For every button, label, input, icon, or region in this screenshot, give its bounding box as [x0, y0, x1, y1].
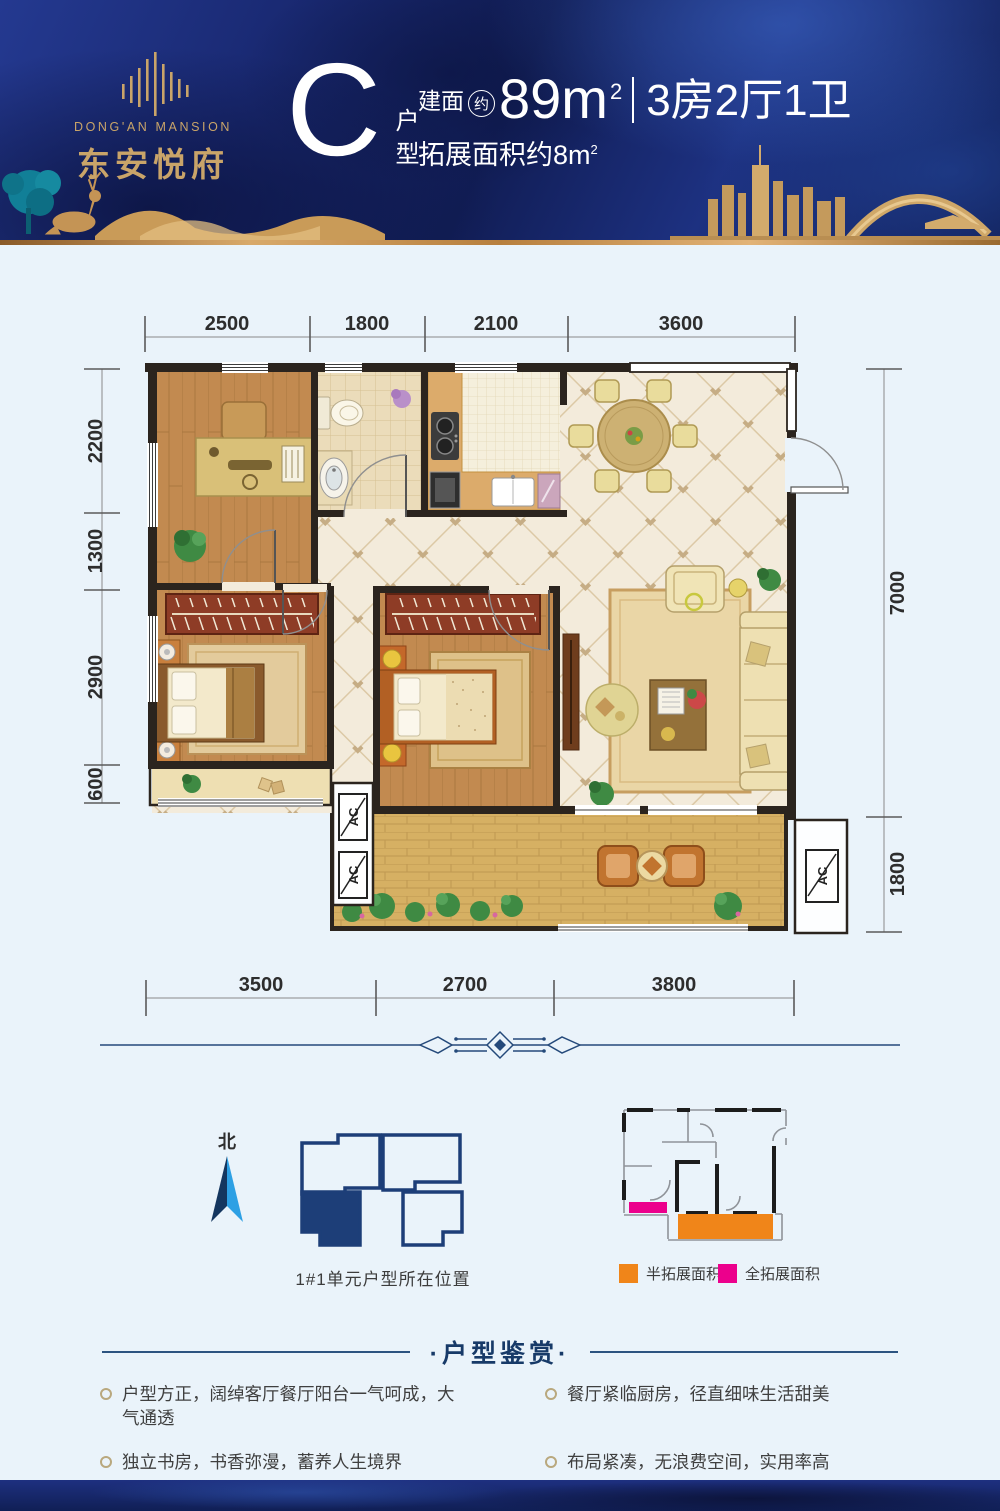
mountains-icon — [95, 211, 385, 240]
divider-ornament — [100, 1032, 900, 1058]
legend-half-swatch — [619, 1264, 638, 1283]
dim-top-2: 1800 — [345, 313, 390, 335]
dim-top-3: 2100 — [474, 313, 519, 335]
dim-right-2: 1800 — [887, 852, 909, 897]
unit-letter: C — [286, 44, 381, 176]
bullet-icon — [100, 1456, 112, 1468]
review-header: ·户型鉴赏· — [0, 1334, 1000, 1370]
bullet-icon — [545, 1456, 557, 1468]
brand-logo-icon — [108, 52, 200, 116]
dim-left-4: 600 — [85, 767, 107, 800]
area-sup: 2 — [610, 81, 622, 103]
bedroom-middle-furniture — [378, 594, 540, 768]
north-indicator: 北 — [211, 1132, 243, 1222]
review-item: 独立书房，书香弥漫，蓄养人生境界 — [100, 1450, 455, 1474]
brand-name-en: DONG'AN MANSION — [58, 120, 248, 134]
brand-name-cn: 东安悦府 — [58, 138, 248, 186]
unit-spec: 建面 约 89m 2 3房2厅1卫 拓展面积约8m2 — [418, 72, 852, 172]
page: DONG'AN MANSION 东安悦府 C 户型 建面 约 89m 2 3房2… — [0, 0, 1000, 1511]
expand-value: 拓展面积约8m — [418, 140, 591, 170]
ac-label-2: AC — [346, 865, 361, 884]
entry-door — [791, 438, 848, 493]
half-expansion-zone — [678, 1214, 773, 1239]
review-item: 餐厅紧临厨房，径直细味生活甜美 — [545, 1382, 900, 1430]
dim-bottom-3: 3800 — [652, 974, 697, 996]
brand-logo: DONG'AN MANSION 东安悦府 — [58, 52, 248, 186]
rooms-value: 3房2厅1卫 — [646, 79, 851, 125]
legend-half-label: 半拓展面积 — [646, 1266, 721, 1283]
floor-plan: AC AC AC 2500 1800 2100 3600 2200 1300 2… — [0, 280, 1000, 1065]
review-item-text: 户型方正，阔绰客厅餐厅阳台一气呵成，大气通透 — [122, 1382, 455, 1430]
building-locator — [302, 1135, 462, 1245]
review-rule-left — [102, 1351, 410, 1353]
north-label: 北 — [218, 1132, 236, 1152]
bridge-icon — [850, 199, 989, 239]
dim-left-2: 1300 — [85, 529, 107, 574]
area-value: 89m — [499, 72, 608, 125]
unit-location-block — [302, 1192, 360, 1245]
dim-bottom-2: 2700 — [443, 974, 488, 996]
legend-full-swatch — [718, 1264, 737, 1283]
review-item: 户型方正，阔绰客厅餐厅阳台一气呵成，大气通透 — [100, 1382, 455, 1430]
review-rule-right — [590, 1351, 898, 1353]
gold-divider — [0, 240, 1000, 245]
north-arrow-icon — [211, 1156, 227, 1222]
approx-badge: 约 — [468, 90, 495, 117]
expand-sup: 2 — [591, 142, 598, 157]
legend-full-label: 全拓展面积 — [745, 1265, 820, 1283]
north-arrow-icon-right — [227, 1156, 243, 1222]
dim-left-3: 2900 — [85, 655, 107, 700]
review-list: 户型方正，阔绰客厅餐厅阳台一气呵成，大气通透 餐厅紧临厨房，径直细味生活甜美 独… — [100, 1382, 900, 1474]
bullet-icon — [100, 1388, 112, 1400]
legend: 半拓展面积 全拓展面积 — [619, 1264, 820, 1283]
review-title: ·户型鉴赏· — [430, 1334, 571, 1370]
review-item-text: 布局紧凑，无浪费空间，实用率高 — [567, 1450, 830, 1474]
review-item: 布局紧凑，无浪费空间，实用率高 — [545, 1450, 900, 1474]
header: DONG'AN MANSION 东安悦府 C 户型 建面 约 89m 2 3房2… — [0, 0, 1000, 245]
tree-icon — [2, 170, 61, 234]
locator-row: 北 1#1单元户型所在位置 半拓展面积 全拓展面积 — [0, 1085, 1000, 1305]
dim-right-1: 7000 — [887, 571, 909, 616]
dim-left-1: 2200 — [85, 419, 107, 464]
full-expansion-zone — [629, 1202, 667, 1213]
review-item-text: 独立书房，书香弥漫，蓄养人生境界 — [122, 1450, 402, 1474]
bullet-icon — [545, 1388, 557, 1400]
area-label: 建面 — [418, 82, 464, 125]
dim-top-4: 3600 — [659, 313, 704, 335]
review-item-text: 餐厅紧临厨房，径直细味生活甜美 — [567, 1382, 830, 1406]
spec-divider — [632, 77, 634, 123]
mini-floorplan — [624, 1110, 786, 1240]
unit-type-label: 户型 — [387, 108, 422, 174]
footer — [0, 1480, 1000, 1511]
dim-top-1: 2500 — [205, 313, 250, 335]
ac-label-3: AC — [815, 866, 830, 885]
ac-label-1: AC — [346, 807, 361, 826]
dim-bottom-1: 3500 — [239, 974, 284, 996]
locator-caption: 1#1单元户型所在位置 — [295, 1270, 470, 1289]
bedroom-left-furniture — [154, 594, 318, 762]
